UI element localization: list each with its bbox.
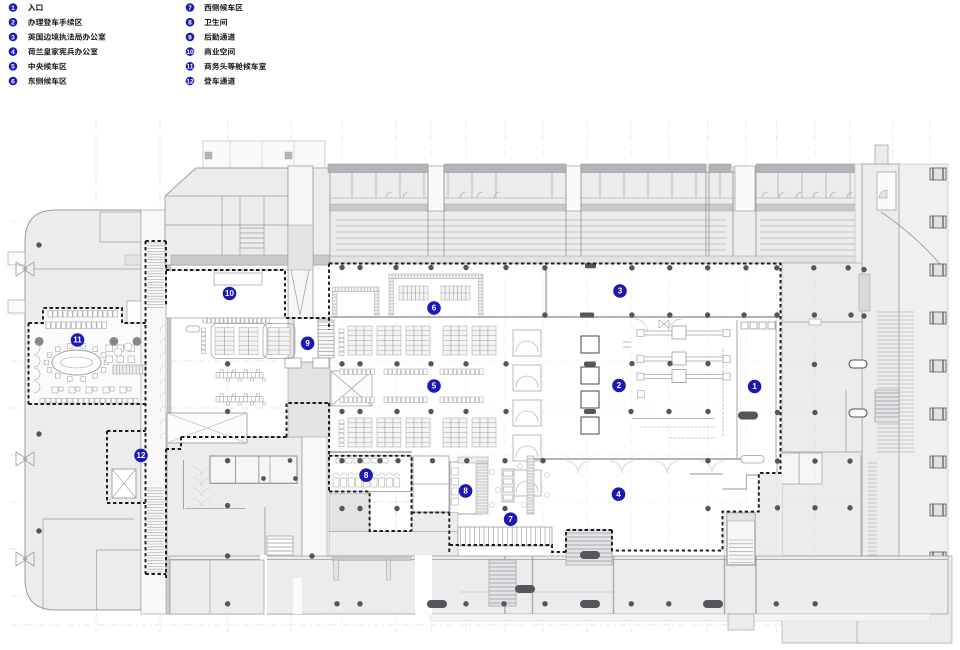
svg-text:4: 4 xyxy=(11,49,15,56)
svg-text:8: 8 xyxy=(364,471,369,480)
svg-text:10: 10 xyxy=(186,49,194,56)
svg-text:9: 9 xyxy=(305,339,310,348)
svg-text:11: 11 xyxy=(73,336,82,345)
svg-text:2: 2 xyxy=(617,381,622,390)
svg-text:12: 12 xyxy=(137,451,146,460)
svg-text:4: 4 xyxy=(616,490,621,499)
svg-text:8: 8 xyxy=(188,20,192,27)
svg-text:6: 6 xyxy=(11,78,15,85)
svg-text:2: 2 xyxy=(11,20,15,27)
svg-text:11: 11 xyxy=(187,64,194,71)
svg-text:10: 10 xyxy=(225,289,234,298)
svg-text:12: 12 xyxy=(186,78,194,85)
svg-text:9: 9 xyxy=(188,34,192,41)
svg-text:1: 1 xyxy=(11,5,15,12)
svg-text:1: 1 xyxy=(752,382,757,391)
svg-text:7: 7 xyxy=(508,515,513,524)
svg-text:6: 6 xyxy=(432,304,437,313)
svg-text:8: 8 xyxy=(463,487,468,496)
svg-text:5: 5 xyxy=(11,64,15,71)
svg-text:3: 3 xyxy=(618,287,623,296)
svg-text:7: 7 xyxy=(188,5,192,12)
svg-text:3: 3 xyxy=(11,34,15,41)
svg-text:5: 5 xyxy=(432,382,437,391)
